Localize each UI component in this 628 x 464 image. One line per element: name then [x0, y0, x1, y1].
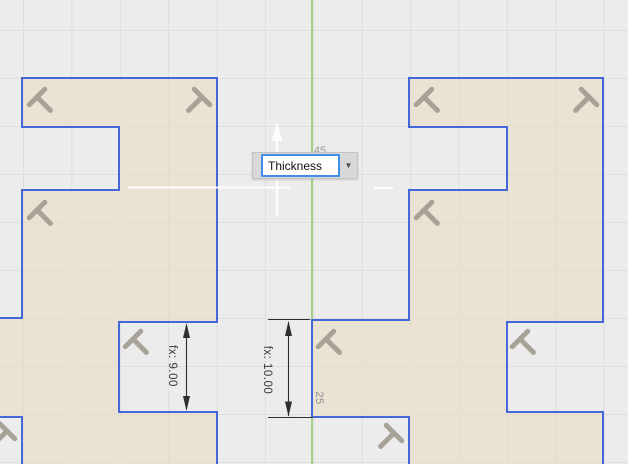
dimension-label-25[interactable]: 25 — [313, 391, 325, 404]
sketch-canvas[interactable]: 45 fx: 9.00 fx: 10.00 25 ▼ — [0, 0, 628, 464]
fixed-constraint-icon[interactable] — [373, 425, 402, 454]
dimension-arrow-up — [285, 321, 292, 336]
sketch-profile-right[interactable] — [312, 78, 603, 464]
dimension-edit-popup: ▼ — [252, 152, 358, 179]
fixed-constraint-icon[interactable] — [512, 331, 541, 360]
dimension-arrow-down — [285, 402, 292, 417]
dimension-label-slot[interactable]: fx: 9.00 — [166, 345, 178, 387]
fixed-constraint-icon[interactable] — [125, 331, 154, 360]
sketch-profile-left[interactable] — [0, 78, 217, 464]
dimension-dropdown-button[interactable]: ▼ — [340, 155, 357, 176]
dimension-arrow-down — [183, 396, 190, 411]
chevron-down-icon: ▼ — [345, 161, 353, 170]
dimension-value-input[interactable] — [261, 154, 340, 177]
dimension-arrow-up — [183, 323, 190, 338]
dimension-label-tab[interactable]: fx: 10.00 — [261, 346, 273, 395]
fixed-constraint-icon[interactable] — [0, 423, 15, 452]
